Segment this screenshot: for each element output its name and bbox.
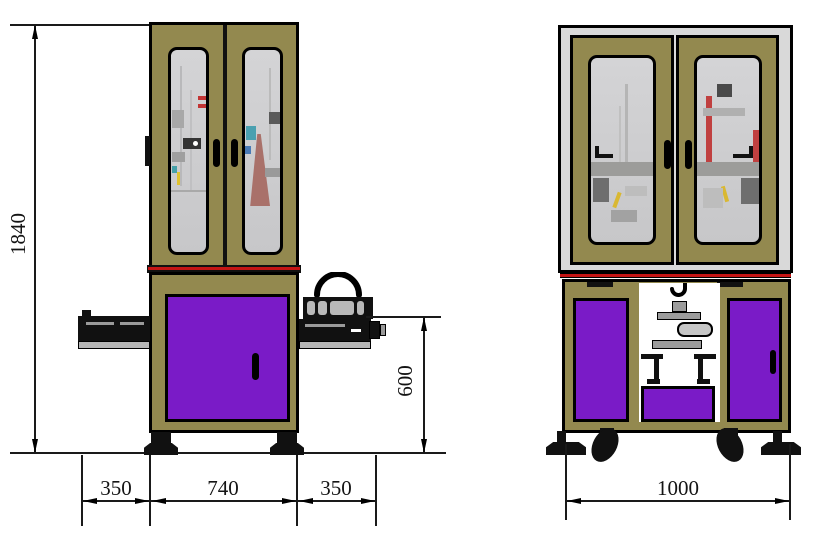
press-puck — [677, 322, 713, 337]
front-upper-cabinet — [149, 22, 299, 268]
left-conveyor-rail — [78, 341, 150, 349]
internal-block — [593, 178, 609, 202]
internal-red-mark — [198, 96, 206, 100]
center-opening — [639, 283, 720, 422]
leveling-foot-stem — [277, 432, 297, 443]
internal-block — [625, 186, 647, 196]
bracket-web — [698, 359, 703, 379]
dim-extension — [375, 455, 377, 526]
conveyor-slot — [351, 329, 361, 332]
dim-label-350-left: 350 — [86, 476, 146, 500]
internal-clamp — [749, 146, 753, 158]
internal-table-band — [591, 162, 653, 176]
dim-label-350-right: 350 — [306, 476, 366, 500]
door-handle — [231, 139, 238, 167]
conveyor-end-nub — [380, 324, 386, 336]
door-handle — [685, 140, 692, 169]
rotary-table — [303, 297, 373, 319]
top-bracket-bar — [717, 282, 743, 287]
side-right-door-window — [694, 55, 762, 245]
arrow-left-icon — [567, 498, 581, 504]
arrow-down-icon — [421, 439, 427, 453]
internal-teal-block — [246, 126, 256, 140]
door-handle — [664, 140, 671, 169]
bracket-flange — [641, 354, 663, 359]
arrow-up-icon — [421, 317, 427, 331]
right-conveyor-rail — [299, 341, 371, 349]
rotary-segment — [330, 301, 354, 315]
front-purple-door — [165, 294, 290, 422]
support-bracket — [641, 354, 663, 386]
internal-block — [172, 152, 185, 162]
internal-rod — [619, 106, 621, 170]
dim-label-740: 740 — [193, 476, 253, 500]
safety-seam-red-line — [148, 267, 300, 270]
internal-blue-mark — [245, 146, 251, 154]
internal-yellow-mark — [612, 192, 621, 208]
rotary-segment — [357, 301, 364, 315]
front-view: 1840 — [0, 0, 460, 543]
dim-extension — [296, 455, 298, 526]
internal-fixture — [183, 138, 201, 149]
ground-line — [10, 452, 446, 454]
safety-red-line — [560, 273, 791, 278]
dim-extension — [789, 444, 791, 520]
dim-extension-600 — [366, 316, 441, 318]
hook-icon — [669, 283, 691, 301]
dim-extension-top — [10, 24, 149, 26]
arrow-right-icon — [775, 498, 789, 504]
internal-block — [703, 188, 723, 208]
internal-block — [265, 168, 283, 177]
press-block — [672, 301, 687, 312]
arrow-left-icon — [152, 498, 166, 504]
side-lower-cabinet — [562, 279, 791, 433]
internal-table-band — [697, 162, 759, 176]
side-purple-panel-left — [573, 298, 629, 422]
internal-yellow-mark — [177, 172, 180, 185]
dim-line-1000 — [566, 500, 790, 502]
door-split-line — [223, 25, 227, 265]
right-conveyor-beam — [299, 319, 371, 341]
arrow-down-icon — [32, 439, 38, 453]
conveyor-slot — [86, 322, 114, 325]
conveyor-slot — [305, 324, 345, 327]
side-left-door — [570, 35, 674, 265]
internal-block — [741, 178, 761, 204]
front-left-door-window — [168, 47, 209, 255]
top-bracket-bar — [587, 282, 613, 287]
side-purple-panel-center — [641, 386, 715, 422]
internal-red-mark — [198, 104, 206, 108]
door-handle — [252, 353, 259, 380]
bracket-web — [654, 359, 659, 379]
conveyor-slot — [120, 322, 144, 325]
side-purple-door-right — [727, 298, 782, 422]
front-lower-cabinet — [149, 272, 299, 433]
leveling-foot-pad — [144, 443, 178, 455]
side-right-door — [676, 35, 779, 265]
dim-extension — [149, 455, 151, 526]
left-conveyor-beam — [78, 316, 150, 341]
leveling-foot-pad — [761, 442, 801, 455]
internal-clamp — [595, 146, 599, 158]
bracket-foot — [647, 379, 660, 384]
internal-rod — [625, 84, 628, 170]
arrow-right-icon — [282, 498, 296, 504]
leveling-foot-stem — [151, 432, 171, 443]
support-bracket — [694, 354, 716, 386]
rotation-arc-icon — [312, 272, 364, 298]
dim-label-1840: 1840 — [6, 205, 30, 263]
rotary-segment — [307, 301, 315, 315]
dim-extension — [565, 444, 567, 520]
press-plate — [652, 340, 702, 349]
conveyor-end-cap — [369, 321, 380, 339]
internal-block — [717, 84, 732, 97]
dim-line-1840 — [34, 24, 36, 453]
dim-label-600: 600 — [393, 352, 417, 410]
leveling-foot-pad — [270, 443, 304, 455]
internal-block — [611, 210, 637, 222]
arrow-up-icon — [32, 25, 38, 39]
door-handle — [770, 350, 776, 374]
internal-plate — [703, 108, 745, 116]
side-left-door-window — [588, 55, 656, 245]
front-right-door-window — [242, 47, 283, 255]
internal-block — [269, 112, 282, 124]
rotary-segment — [318, 301, 327, 315]
dim-line-600 — [423, 316, 425, 453]
press-plate — [657, 312, 701, 320]
door-handle — [213, 139, 220, 167]
internal-red-post — [706, 96, 712, 168]
side-view: 1000 — [460, 0, 831, 543]
bracket-foot — [697, 379, 710, 384]
internal-block — [172, 110, 184, 128]
internal-fixture-dot — [193, 141, 198, 146]
hinge-tab — [145, 136, 150, 166]
dim-label-1000: 1000 — [638, 476, 718, 500]
internal-shelf-line — [171, 190, 206, 192]
dim-chain-line — [82, 500, 377, 502]
machine-dimension-drawing: 1840 — [0, 0, 831, 543]
dim-extension — [81, 455, 83, 526]
